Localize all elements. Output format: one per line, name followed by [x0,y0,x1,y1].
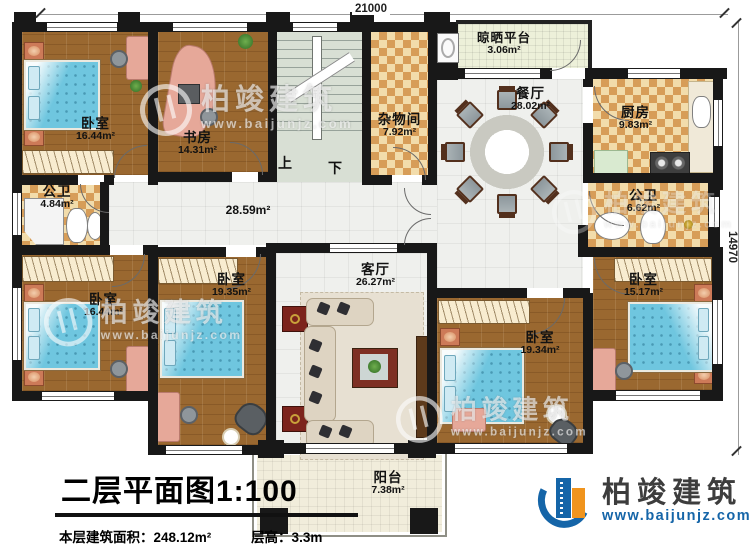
wall [583,79,593,87]
wall [158,247,226,257]
stairs-down-label: 下 [328,158,342,178]
dimension-tick [731,446,742,457]
window [708,197,720,227]
pillow [698,308,709,332]
wall [428,80,437,185]
stairs-up-label: 上 [278,153,292,173]
column [266,12,290,24]
window [616,390,700,401]
brand-name: 柏竣建筑 [602,478,750,508]
pillow [444,355,456,381]
shower [24,198,64,245]
brand-url: www.baijunjz.com [602,508,750,524]
wall [268,22,277,182]
pillow [28,66,40,90]
window [628,68,680,79]
desk [126,346,150,394]
desk-chair [110,360,128,378]
platform-railing [588,20,592,68]
dimension-right-value: 14970 [726,228,738,266]
plan-subtitle: 本层建筑面积：248.12m² 层高：3.3m [55,526,358,546]
desk [452,408,486,432]
tv-cabinet-left [282,306,308,332]
balcony-door [306,443,394,454]
dimension-tick [35,8,46,19]
wall [148,22,158,185]
column [118,12,140,24]
wall [427,253,437,448]
toilet [66,208,88,243]
column [408,440,436,458]
wardrobe [22,150,114,174]
wall [158,172,232,182]
wardrobe [438,300,530,324]
toilet [640,210,666,244]
wall [12,175,78,185]
dimension-tick [731,18,742,29]
wall [148,245,158,391]
column [424,12,450,24]
dimension-line-right [738,20,739,455]
stove [650,152,690,174]
floor-area-label: 本层建筑面积：248.12m² [59,530,211,545]
window [173,22,247,32]
dining-chair [497,194,517,214]
wall [437,68,465,79]
wall [583,123,593,173]
wall [578,247,723,257]
window [712,300,723,364]
dining-chair [445,142,465,162]
dining-table [468,113,546,191]
platform-railing [456,20,592,24]
kitchen-cabinet [594,150,628,174]
plan-title: 二层平面图1:100 [55,466,358,517]
window [166,445,242,455]
pillow [28,96,40,120]
wall [362,175,392,185]
desk [592,348,616,394]
wall [583,293,593,392]
pillow [164,340,176,366]
dimension-tick [719,8,730,19]
plant [238,34,253,49]
wall [266,243,276,448]
plant [130,80,142,92]
cased-opening [330,243,397,253]
nightstand [694,284,714,302]
dimension-top-value: 21000 [352,3,390,15]
nightstand [24,128,44,146]
plant [368,360,381,373]
nightstand [24,284,44,302]
nightstand [24,42,44,60]
window [42,391,114,401]
window [455,443,567,454]
washing-machine [437,33,459,63]
floor-height-label: 层高：3.3m [251,530,322,545]
desk-chair [200,108,218,126]
floor-plan-canvas: 上 下 [0,0,750,547]
desk-chair [110,50,128,68]
window [465,68,540,79]
balcony-post [410,508,438,534]
pillow [28,336,40,360]
column [14,12,36,24]
desk-chair [615,362,633,380]
window [12,193,22,235]
pillow [698,336,709,360]
column [258,440,284,458]
title-block: 二层平面图1:100 本层建筑面积：248.12m² 层高：3.3m [55,466,358,546]
stool [222,428,240,446]
pillow [28,308,40,332]
wall [362,22,371,185]
floor-hallway [109,182,437,245]
pillow [444,386,456,412]
wardrobe [22,256,114,282]
wall [12,245,110,255]
nightstand [440,328,460,346]
floor-corridor [437,243,583,288]
wall [583,173,723,183]
floor-drain [684,220,693,229]
window [47,22,117,32]
pillow [164,308,176,334]
computer-monitor [178,84,200,104]
wall [563,288,590,298]
brand-logo: 柏竣建筑 www.baijunjz.com [534,470,750,532]
brand-logo-icon [534,470,594,532]
nightstand [24,368,44,386]
desk-chair [180,406,198,424]
dining-chair [549,142,569,162]
desk [126,36,150,80]
dining-chair [497,90,517,110]
window [713,100,723,146]
kitchen-sink [692,96,711,128]
window [293,22,337,32]
window [12,288,22,360]
wall [427,288,527,298]
